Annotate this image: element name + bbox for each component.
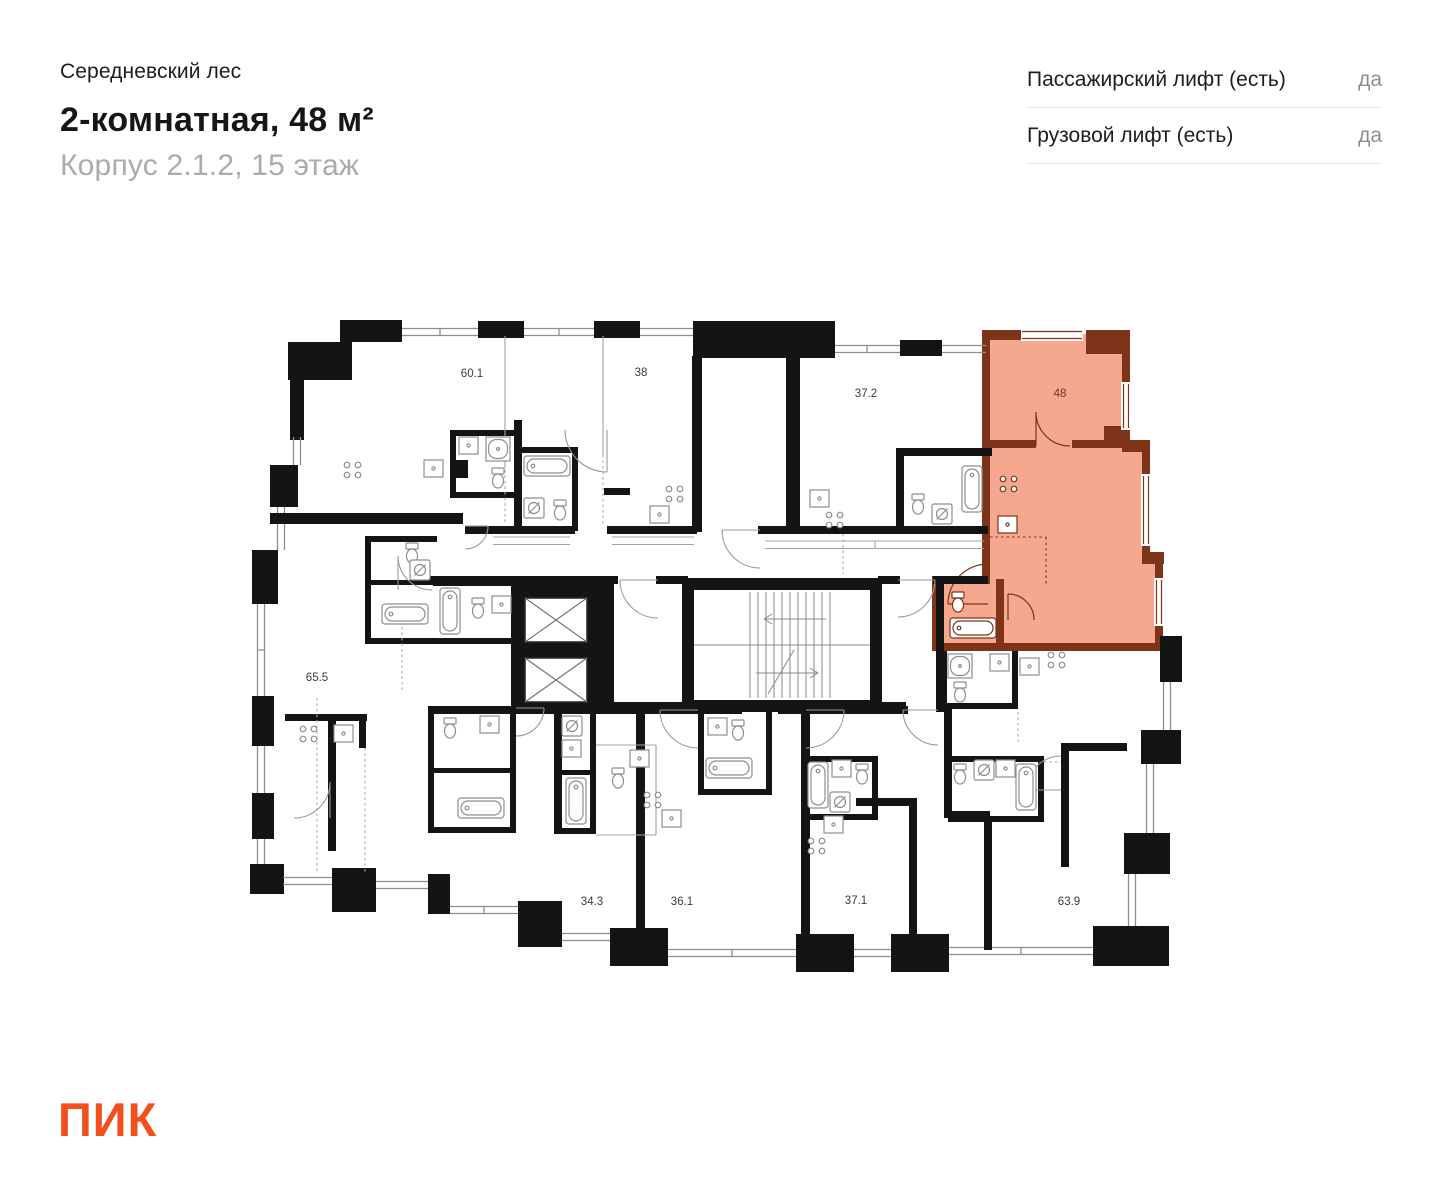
area-label: 38 [635, 367, 648, 379]
stairwell [682, 578, 882, 712]
area-label: 36.1 [671, 896, 693, 908]
area-label: 37.2 [855, 388, 877, 400]
area-label: 48 [1054, 388, 1067, 400]
area-label: 34.3 [581, 896, 603, 908]
pik-logo[interactable]: ПИК [58, 1092, 157, 1147]
elevator-shafts [511, 584, 614, 714]
area-label: 60.1 [461, 368, 483, 380]
area-label: 37.1 [845, 895, 867, 907]
interior-glazing [493, 537, 984, 549]
area-label: 65.5 [306, 672, 328, 684]
area-label: 63.9 [1058, 896, 1080, 908]
floor-plan: 60.13837.24865.534.336.137.163.9 [0, 0, 1440, 1200]
